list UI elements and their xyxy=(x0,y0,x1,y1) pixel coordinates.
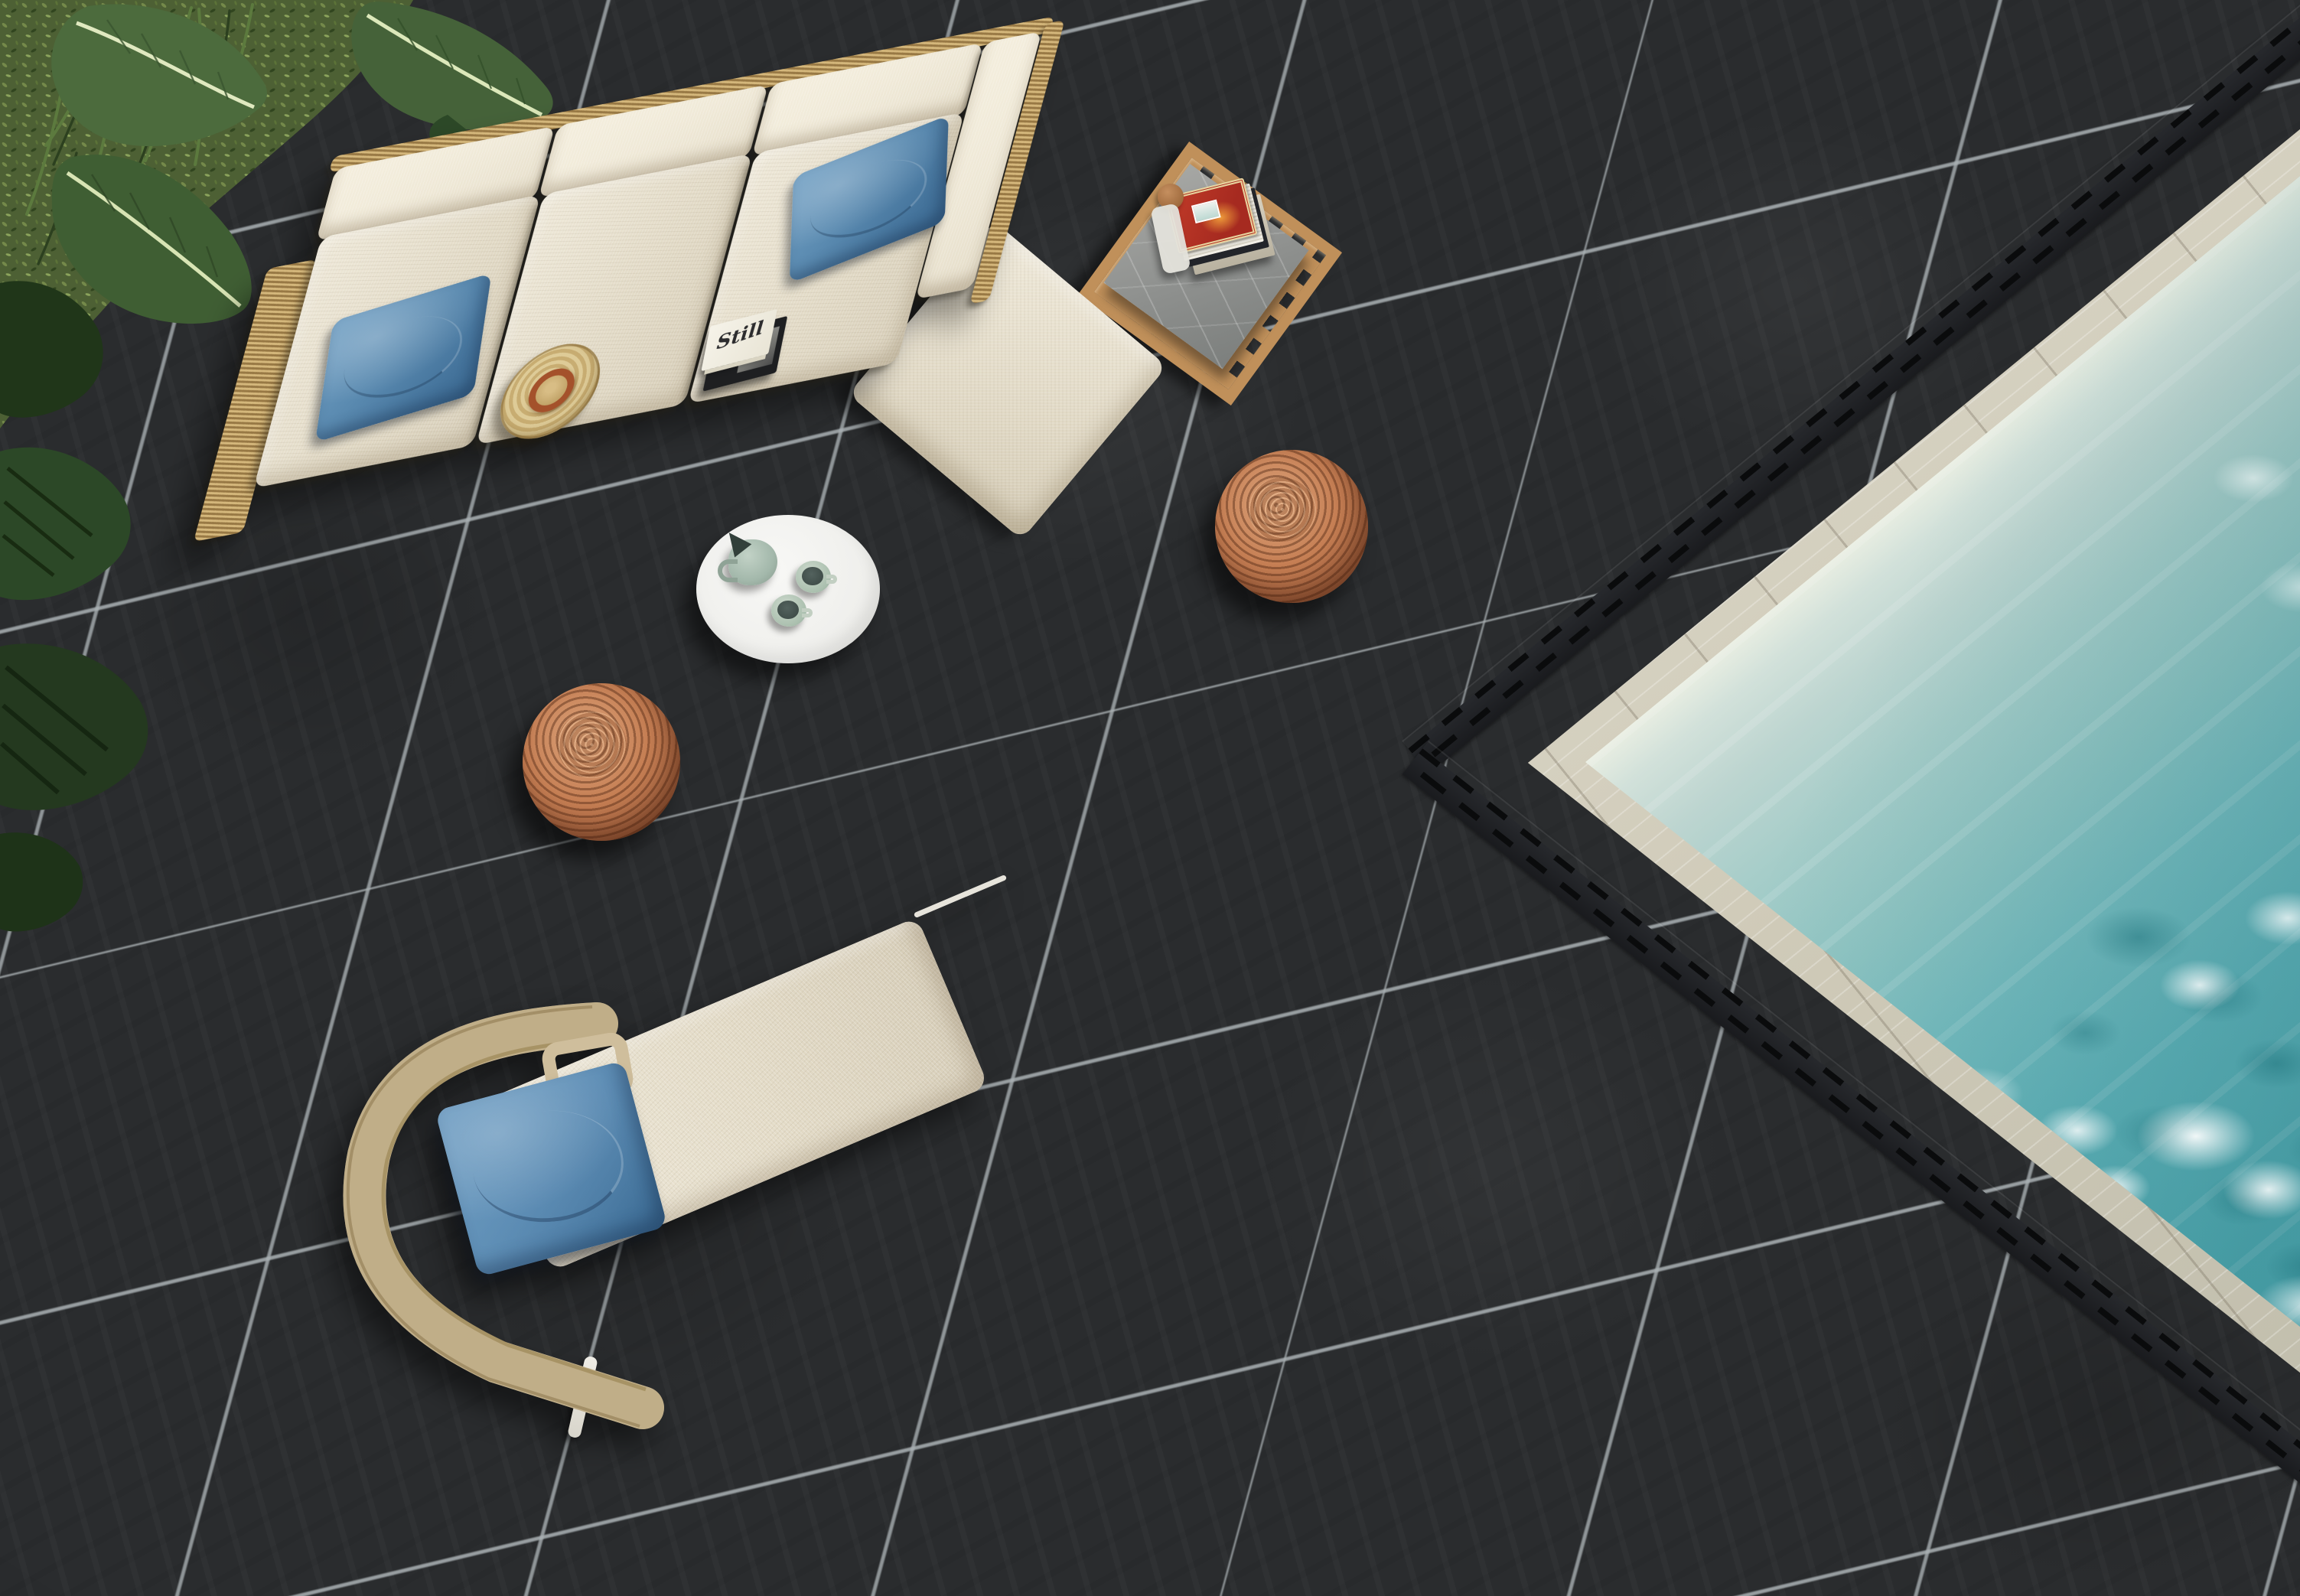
ceramic-pitcher xyxy=(728,539,777,585)
cup-handle xyxy=(826,575,837,584)
cookbook-label xyxy=(1191,200,1221,224)
tea-surface xyxy=(777,601,799,619)
straw-hat-crown xyxy=(523,364,579,415)
cup-handle xyxy=(802,608,813,617)
tea-surface xyxy=(802,567,823,585)
tea-cup-1 xyxy=(796,561,831,593)
round-side-table xyxy=(696,515,880,663)
pitcher-handle xyxy=(718,559,738,582)
monstera-leaves-left xyxy=(0,281,148,931)
pouf-left xyxy=(523,683,680,841)
pouf-right xyxy=(1215,450,1368,603)
poolside-patio-scene: Still xyxy=(0,0,2300,1596)
tea-cup-2 xyxy=(771,594,806,627)
